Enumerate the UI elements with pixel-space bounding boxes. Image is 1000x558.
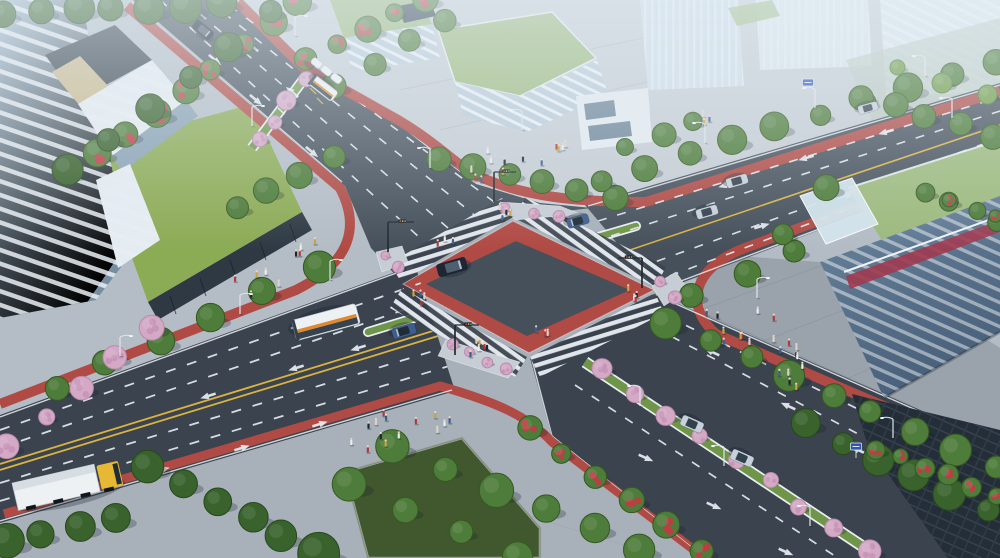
flower-dot [925,467,931,473]
canopy-highlight [242,506,255,519]
canopy-highlight [793,501,800,508]
pedestrian [778,371,780,376]
pedestrian [475,338,477,343]
canopy-highlight [41,411,48,418]
intersection-aerial-render [0,0,1000,558]
pedestrian [265,270,267,275]
pedestrian [436,428,438,433]
canopy-highlight [738,264,750,276]
canopy-highlight [658,409,667,418]
canopy-highlight [656,278,661,283]
canopy-highlight [988,459,998,469]
canopy-highlight [396,501,407,512]
atmospheric-haze [0,0,1000,250]
canopy-highlight [944,438,958,452]
pedestrian [795,385,797,390]
pedestrian [234,276,236,281]
canopy-highlight [303,538,322,557]
canopy-highlight [703,332,713,342]
flower-dot [596,479,602,485]
lamp-head [797,505,801,507]
canopy-highlight [861,543,871,553]
flower-dot [83,391,90,398]
lamp-head [249,293,253,295]
pedestrian [706,311,708,316]
pedestrian [547,331,549,336]
canopy-highlight [629,387,637,395]
pedestrian [367,423,369,428]
canopy-highlight [382,252,386,256]
canopy-highlight [106,349,117,360]
canopy-highlight [73,379,84,390]
canopy-highlight [795,412,808,425]
canopy-highlight [173,473,186,486]
scene-canvas [0,0,1000,558]
pedestrian [299,251,301,256]
pedestrian [449,418,451,423]
pedestrian [801,364,803,369]
pedestrian [415,419,417,424]
flower-dot [796,509,800,513]
lamp-head [880,417,884,419]
pedestrian [748,340,750,345]
canopy-highlight [744,349,754,359]
canopy-highlight [135,454,150,469]
lamp-head [766,277,770,279]
canopy-highlight [502,364,507,369]
pedestrian [419,291,421,296]
canopy-highlight [835,436,845,446]
canopy-highlight [670,293,676,299]
canopy-highlight [980,502,990,512]
pedestrian [739,334,741,339]
flower-dot [502,370,505,373]
pedestrian [420,301,422,306]
canopy-highlight [69,515,82,528]
pedestrian [367,447,369,452]
canopy-highlight [483,359,488,364]
canopy-highlight [30,524,42,536]
pedestrian [788,340,790,345]
pedestrian [295,251,297,256]
canopy-highlight [269,524,283,538]
canopy-highlight [693,542,703,552]
pedestrian [434,413,436,418]
canopy-highlight [654,312,668,326]
pedestrian [443,421,445,426]
canopy-highlight [105,507,118,520]
pedestrian [398,433,400,438]
pedestrian [796,354,798,359]
canopy-highlight [918,461,927,470]
flower-dot [449,345,452,348]
canopy-highlight [869,443,877,451]
canopy-highlight [862,403,872,413]
canopy-highlight [827,521,835,529]
canopy-highlight [453,523,463,533]
flower-dot [730,462,735,467]
canopy-highlight [207,491,219,503]
canopy-highlight [940,467,949,476]
pedestrian [385,441,387,446]
canopy-highlight [252,281,264,293]
lamp-head [627,385,631,387]
canopy-highlight [584,517,597,530]
lamp-head [129,335,133,337]
pedestrian [722,328,724,333]
lamp-head [339,259,343,261]
canopy-highlight [48,380,59,391]
canopy-highlight [142,318,153,329]
pedestrian [795,345,797,350]
flower-dot [506,368,509,371]
pedestrian [773,315,775,320]
flower-dot [634,497,641,504]
pedestrian [483,344,485,349]
canopy-highlight [627,538,641,552]
canopy-highlight [448,340,453,345]
flower-dot [673,298,677,302]
pedestrian [375,420,377,425]
canopy-highlight [622,491,633,502]
canopy-highlight [990,490,997,497]
canopy-highlight [521,419,532,430]
flower-dot [701,438,705,442]
canopy-highlight [554,446,563,455]
canopy-highlight [200,307,213,320]
canopy-highlight [394,263,399,268]
pedestrian [723,340,725,345]
pedestrian [383,411,385,416]
canopy-highlight [466,348,470,352]
pedestrian [757,308,759,313]
pedestrian [478,346,480,351]
pedestrian [773,337,775,342]
canopy-highlight [682,287,693,298]
pedestrian [412,291,414,296]
flower-dot [772,479,776,483]
flower-dot [900,457,904,461]
canopy-highlight [484,477,499,492]
canopy-highlight [765,474,772,481]
canopy-highlight [825,387,836,398]
canopy-highlight [656,515,668,527]
pedestrian [788,380,790,385]
canopy-highlight [964,480,973,489]
canopy-highlight [436,460,447,471]
pedestrian [423,294,425,299]
pedestrian [716,313,718,318]
canopy-highlight [905,422,917,434]
canopy-highlight [536,498,548,510]
pedestrian [380,434,382,439]
pedestrian [350,440,352,445]
lamp-head [711,445,715,447]
canopy-highlight [307,255,321,269]
pedestrian [787,370,789,375]
pedestrian [634,297,636,302]
flower-dot [396,269,399,272]
pedestrian [535,327,537,332]
canopy-highlight [587,469,597,479]
canopy-highlight [902,463,916,477]
flower-dot [876,451,881,456]
flower-dot [386,255,388,257]
pedestrian [544,331,546,336]
canopy-highlight [336,471,351,486]
pedestrian [627,286,629,291]
pedestrian [469,352,471,357]
flower-dot [47,418,52,423]
flower-dot [836,528,841,533]
pedestrian [278,281,280,286]
canopy-highlight [895,451,902,458]
pedestrian [779,348,781,353]
pedestrian [256,272,258,277]
canopy-highlight [595,361,604,370]
